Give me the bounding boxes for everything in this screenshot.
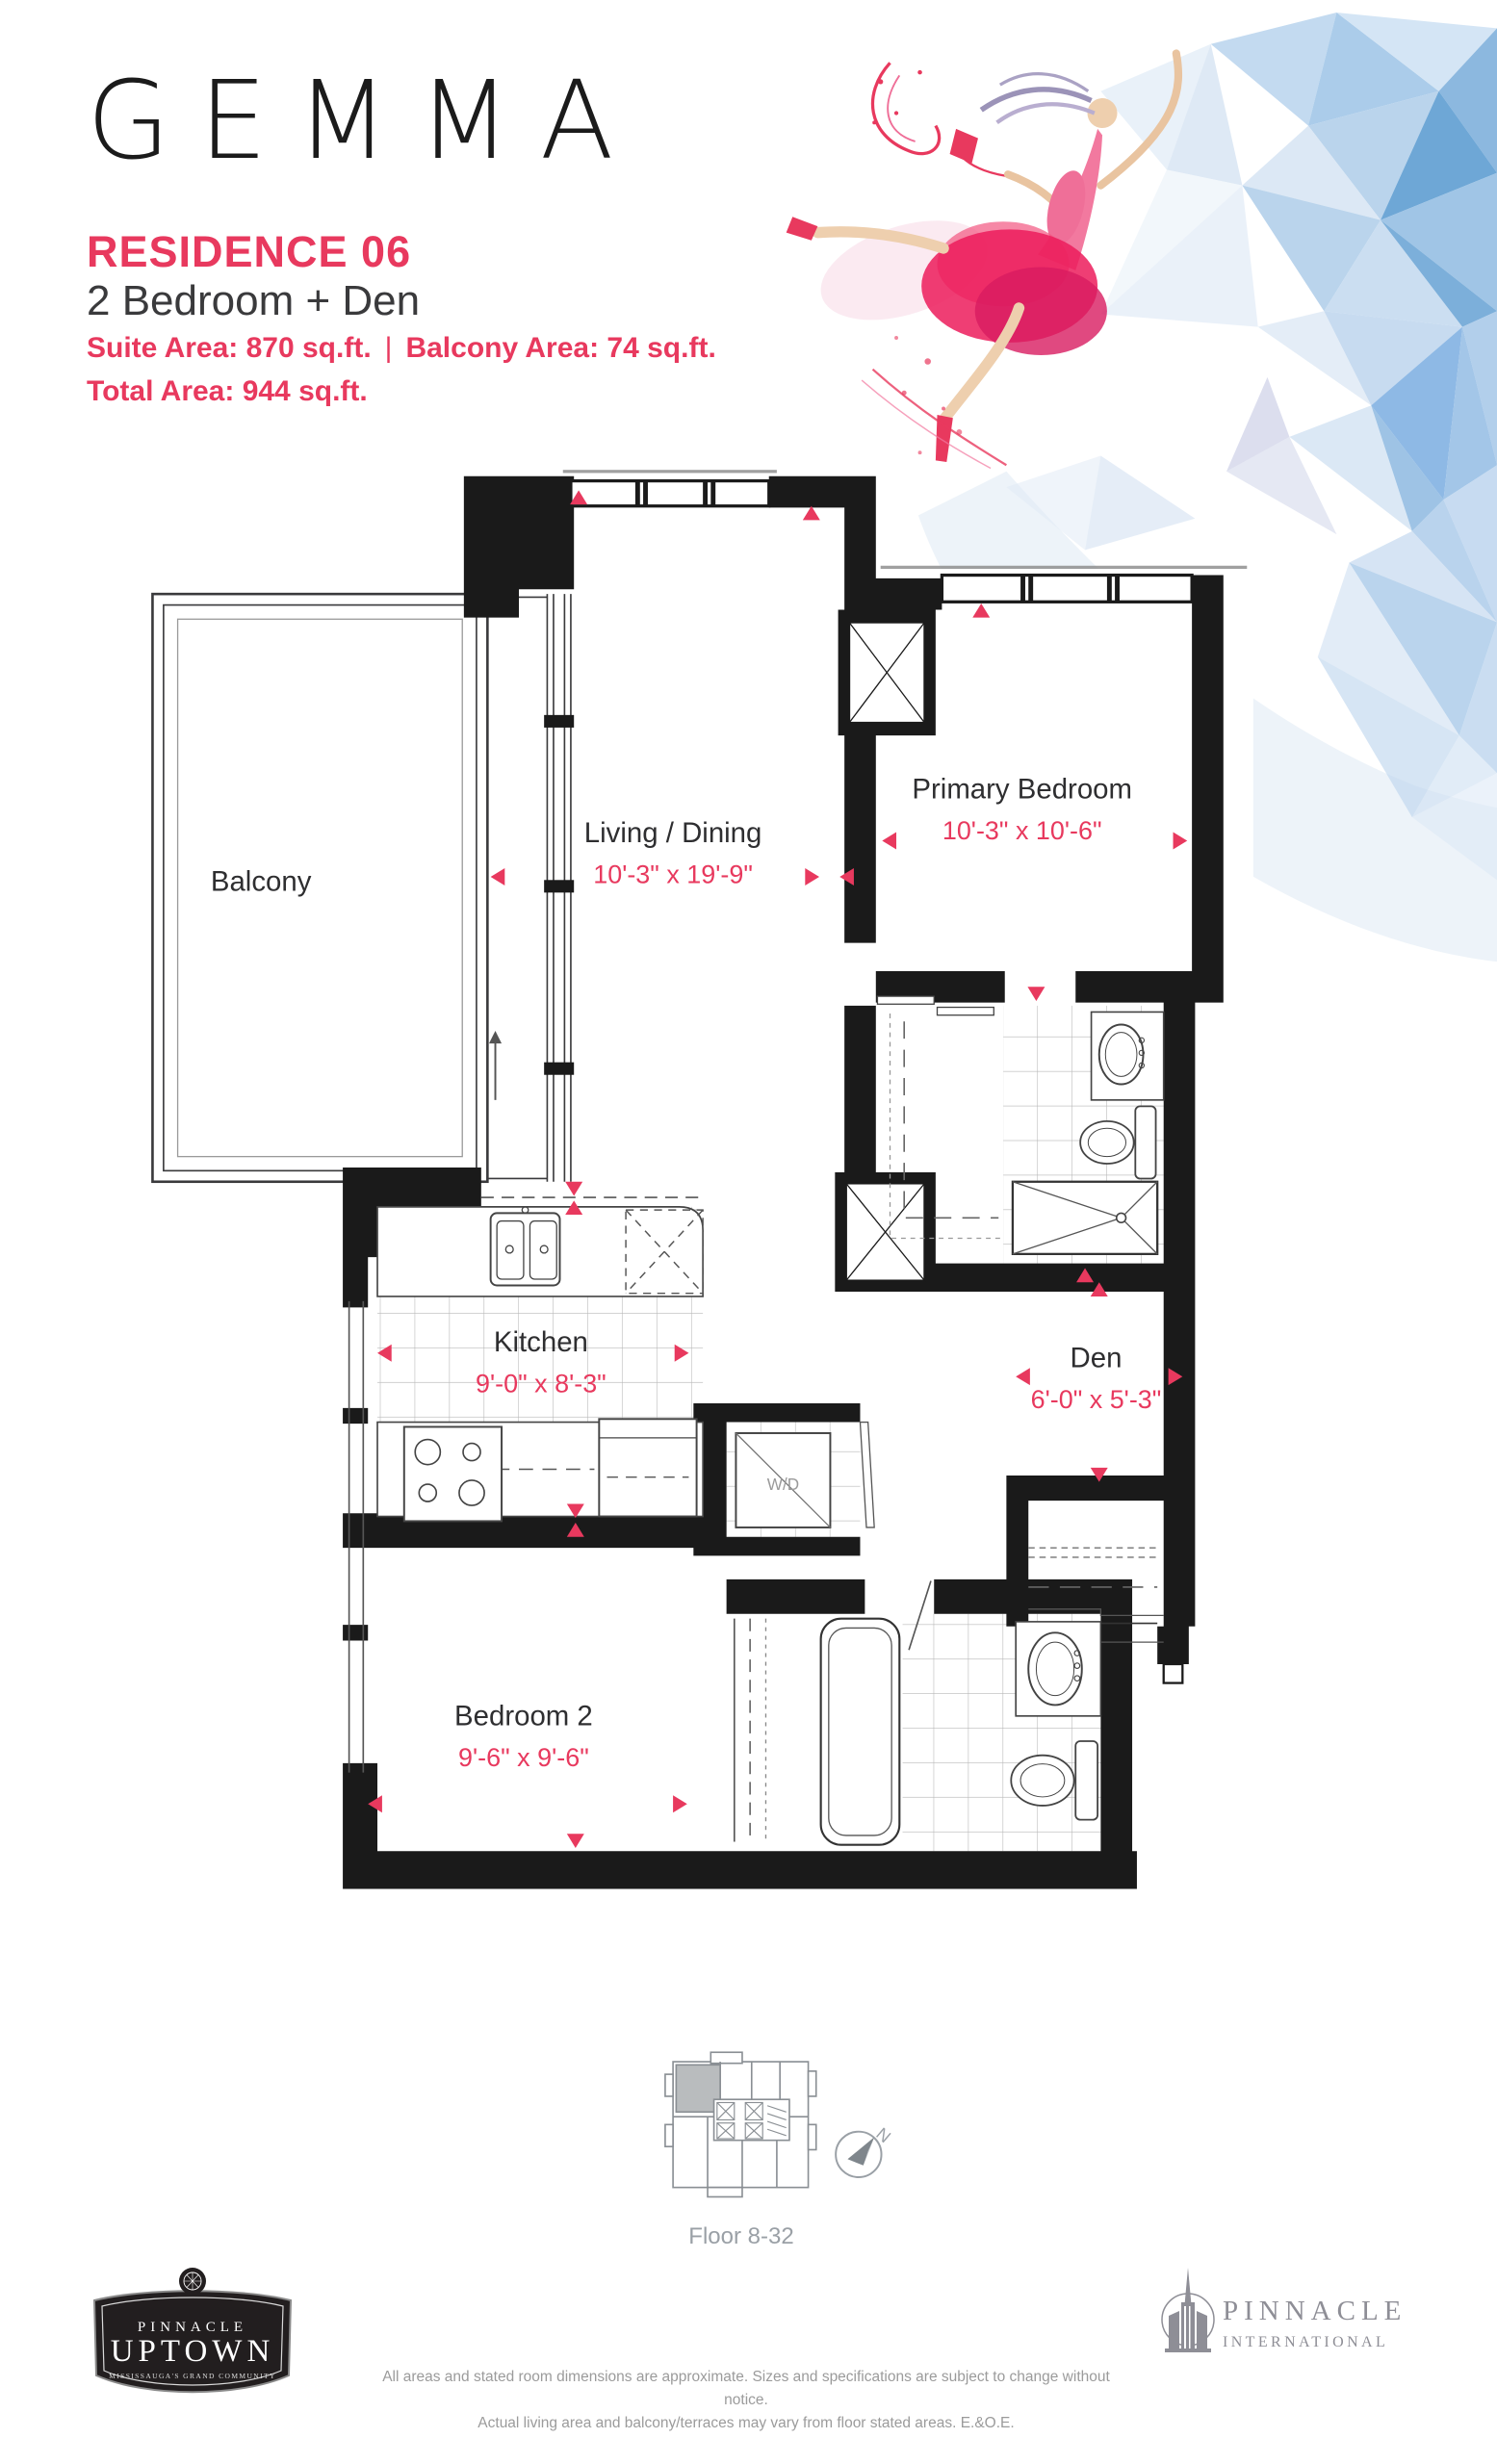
floorplan-drawing: W/D <box>0 0 1497 2464</box>
pinnacle-international-logo: PINNACLE INTERNATIONAL <box>1146 2256 1434 2372</box>
balcony-label: Balcony <box>211 866 312 898</box>
uptown-logo-top: PINNACLE <box>138 2320 247 2335</box>
compass-north-label: N <box>872 2124 894 2147</box>
total-area: Total Area: 944 sq.ft. <box>87 375 368 408</box>
wd-label: W/D <box>767 1475 799 1494</box>
compass-icon: N <box>836 2124 894 2177</box>
floor-range-label: Floor 8-32 <box>616 2223 866 2250</box>
den-dims: 6'-0" x 5'-3" <box>1031 1385 1162 1414</box>
disclaimer-line1: All areas and stated room dimensions are… <box>382 2369 1110 2408</box>
bathroom2-sink-icon <box>1016 1622 1100 1716</box>
intl-logo-sub: INTERNATIONAL <box>1223 2334 1388 2350</box>
bedroom2-label: Bedroom 2 <box>454 1701 593 1732</box>
kitchen-sink-icon <box>491 1207 560 1286</box>
diamond-icon <box>179 2268 206 2295</box>
disclaimer: All areas and stated room dimensions are… <box>375 2366 1117 2435</box>
living-dims: 10'-3" x 19'-9" <box>593 860 753 889</box>
bathtub-icon <box>821 1619 900 1845</box>
ballerina-illustration <box>787 54 1178 469</box>
intl-logo-name: PINNACLE <box>1223 2296 1407 2326</box>
tower-icon <box>1162 2268 1214 2352</box>
keyplan: N <box>665 2052 894 2196</box>
area-line: Suite Area: 870 sq.ft.|Balcony Area: 74 … <box>87 332 716 365</box>
uptown-logo-tagline: MISSISSAUGA'S GRAND COMMUNITY <box>109 2372 276 2380</box>
suite-type: 2 Bedroom + Den <box>87 277 420 325</box>
dishwasher-icon <box>599 1419 696 1516</box>
suite-area: Suite Area: 870 sq.ft. <box>87 332 372 364</box>
stove-icon <box>404 1426 502 1521</box>
primary-dims: 10'-3" x 10'-6" <box>942 816 1102 845</box>
pinnacle-uptown-logo: PINNACLE UPTOWN MISSISSAUGA'S GRAND COMM… <box>85 2260 300 2414</box>
disclaimer-line2: Actual living area and balcony/terraces … <box>477 2415 1014 2431</box>
den-label: Den <box>1071 1342 1123 1373</box>
shower-icon <box>1013 1182 1157 1254</box>
floorplan-page: W/D <box>0 0 1497 2464</box>
kitchen-label: Kitchen <box>494 1326 588 1358</box>
bathroom-sink-icon <box>1092 1012 1164 1099</box>
living-label: Living / Dining <box>584 817 762 849</box>
primary-label: Primary Bedroom <box>912 773 1132 805</box>
uptown-logo-main: UPTOWN <box>111 2334 275 2369</box>
brand-logo: GEMMA <box>87 67 642 175</box>
bedroom2-dims: 9'-6" x 9'-6" <box>458 1743 589 1772</box>
balcony-area: Balcony Area: 74 sq.ft. <box>405 332 715 364</box>
area-separator: | <box>372 332 406 364</box>
residence-title: RESIDENCE 06 <box>87 227 411 277</box>
kitchen-dims: 9'-0" x 8'-3" <box>476 1370 607 1399</box>
